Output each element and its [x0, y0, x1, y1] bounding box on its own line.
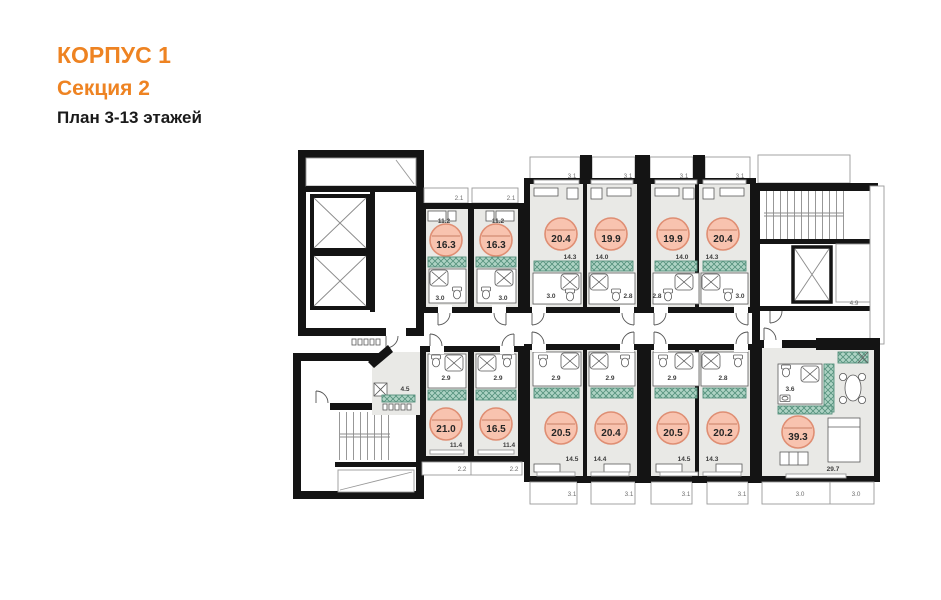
wardrobe-strip [476, 257, 516, 267]
bath-area-label: 2.8 [718, 375, 727, 382]
room-area-label: 14.3 [564, 254, 577, 261]
room-area-label: 11.4 [503, 442, 516, 449]
apartment-area-value: 19.9 [601, 234, 621, 245]
wardrobe-strip [655, 261, 697, 271]
elevator-shaft [312, 254, 368, 308]
dresser [780, 452, 808, 465]
room-area-label: 14.0 [596, 254, 609, 261]
floor-plan-page: КОРПУС 1 Секция 2 План 3-13 этажей [0, 0, 941, 600]
upper-studio-block: 2.1 2.1 11.2 16.3 3.0 [420, 188, 524, 325]
bath-area-label: 2.9 [667, 375, 676, 382]
bath-area-label: 2.9 [551, 375, 560, 382]
dim-label: 2.2 [458, 466, 467, 473]
lower-pair-block: 2.9 21.0 11.4 2.9 16.5 11.4 [420, 334, 524, 475]
wardrobe-strip [428, 257, 466, 267]
mailboxes [352, 339, 380, 345]
bathroom: 3.6 [778, 364, 822, 404]
apartment-area-value: 20.5 [551, 428, 571, 439]
wardrobe-strip [591, 388, 633, 398]
utility-shaft [374, 383, 387, 396]
balcony-dim: 3.0 [796, 491, 805, 498]
bath-area-label: 3.6 [785, 386, 794, 393]
balcony-dim: 3.0 [852, 491, 861, 498]
elevator-core-left [298, 150, 424, 348]
bath-area-label: 2.8 [652, 293, 661, 300]
room-area-label: 14.5 [566, 456, 579, 463]
apartment-area-value: 19.9 [663, 234, 683, 245]
bath-area-label: 3.0 [546, 293, 555, 300]
apartment-area-value: 39.3 [788, 432, 808, 443]
apartment-area-value: 16.3 [486, 240, 506, 251]
wardrobe-strip [703, 261, 746, 271]
bath-area-label: 3.0 [498, 295, 507, 302]
dim-label: 2.2 [510, 466, 519, 473]
apartment-area-value: 21.0 [436, 424, 456, 435]
wardrobe-strip [476, 390, 516, 400]
wardrobe-strip [655, 388, 697, 398]
apartment-area-value: 20.5 [663, 428, 683, 439]
hall-area-label: 4.5 [400, 386, 409, 393]
dim-label: 2.1 [507, 195, 516, 202]
apartment-area-value: 20.2 [713, 428, 733, 439]
apartment-area-value: 16.3 [436, 240, 456, 251]
room-area-label: 14.4 [594, 456, 607, 463]
elevator-shaft [312, 196, 368, 250]
balcony-dim: 3.1 [625, 491, 634, 498]
bath-area-label: 2.9 [493, 375, 502, 382]
wardrobe-strip [382, 395, 415, 402]
bath-area-label: 2.8 [623, 293, 632, 300]
apartment-area-value: 20.4 [601, 428, 621, 439]
room-area-label: 14.0 [676, 254, 689, 261]
wardrobe-strip [428, 390, 466, 400]
apartment-area-value: 16.5 [486, 424, 506, 435]
bath-area-label: 3.0 [735, 293, 744, 300]
balcony-dim: 3.1 [738, 491, 747, 498]
wardrobe-strip [534, 261, 579, 271]
room-area-label: 14.5 [678, 456, 691, 463]
stair-core-right: 4.9 [752, 155, 884, 360]
staircase [338, 412, 392, 460]
ramp [338, 470, 414, 492]
floor-plan-drawing: 2.1 2.1 11.2 16.3 3.0 [0, 0, 941, 600]
dim-label: 2.1 [455, 195, 464, 202]
apartment-area-value: 20.4 [713, 234, 733, 245]
lower-unit-block: 2.9 20.5 14.5 2.9 20.4 14.4 [524, 332, 762, 504]
wardrobe-strip [591, 261, 633, 271]
apartment-area-value: 20.4 [551, 234, 571, 245]
entry-hall: 4.5 [368, 345, 420, 415]
room-area-label: 14.3 [706, 254, 719, 261]
mailboxes [383, 404, 411, 410]
staircase [760, 191, 846, 239]
balcony-dim: 3.1 [568, 491, 577, 498]
elevator-shaft [793, 247, 831, 302]
bed [828, 418, 860, 462]
wardrobe-strip [703, 388, 746, 398]
room-area-label: 29.7 [827, 466, 840, 473]
upper-unit-block: 3.1 3.1 3.1 3.1 20.4 14.3 [524, 155, 756, 325]
room-area-label: 11.4 [450, 442, 463, 449]
dim-label: 4.9 [850, 300, 859, 307]
large-apartment: 3.6 39.3 [756, 328, 880, 504]
bath-area-label: 2.9 [605, 375, 614, 382]
room-area-label: 14.3 [706, 456, 719, 463]
balcony-dim: 3.1 [682, 491, 691, 498]
wardrobe-strip [534, 388, 579, 398]
bath-area-label: 3.0 [435, 295, 444, 302]
bath-area-label: 2.9 [441, 375, 450, 382]
